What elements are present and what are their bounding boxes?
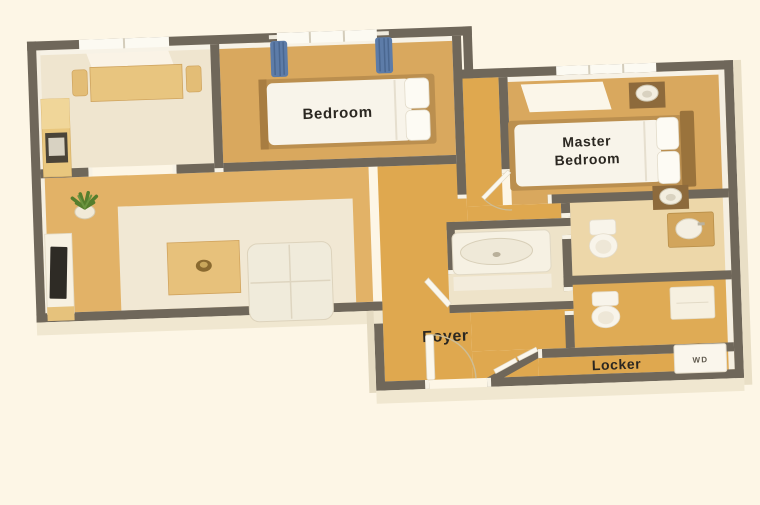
sofa — [247, 241, 334, 322]
faucet — [698, 222, 705, 225]
floor-plan-image: Bedroom Master Bedroom — [0, 0, 760, 505]
television — [50, 247, 68, 299]
kitchen-counter-top — [41, 98, 70, 129]
entry-door — [425, 335, 435, 380]
dining-chair — [72, 70, 88, 97]
pillow — [404, 78, 429, 109]
pillow — [657, 151, 680, 184]
window-light-master — [521, 81, 612, 112]
tv-stand-base — [47, 306, 74, 321]
vanity-sink — [675, 218, 702, 239]
bathroom — [452, 230, 552, 291]
master-bedroom-label-1: Master — [562, 132, 611, 150]
pillow — [656, 117, 679, 150]
toilet-tank — [592, 291, 618, 306]
bedroom-label: Bedroom — [302, 104, 373, 123]
washer-dryer-label: WD — [692, 355, 708, 365]
foyer-floor-2 — [471, 309, 575, 352]
dining-chair — [186, 66, 202, 93]
pillow — [406, 110, 431, 141]
floor-plan-svg: Bedroom Master Bedroom — [0, 0, 760, 505]
dining-table — [90, 64, 183, 101]
master-bedroom-label-2: Bedroom — [554, 150, 620, 168]
locker-label: Locker — [592, 355, 642, 373]
bed-headboard — [680, 111, 697, 187]
floor-plan: Bedroom Master Bedroom — [27, 17, 753, 416]
kitchen-sink-basin — [48, 137, 65, 156]
toilet-tank — [589, 219, 616, 235]
